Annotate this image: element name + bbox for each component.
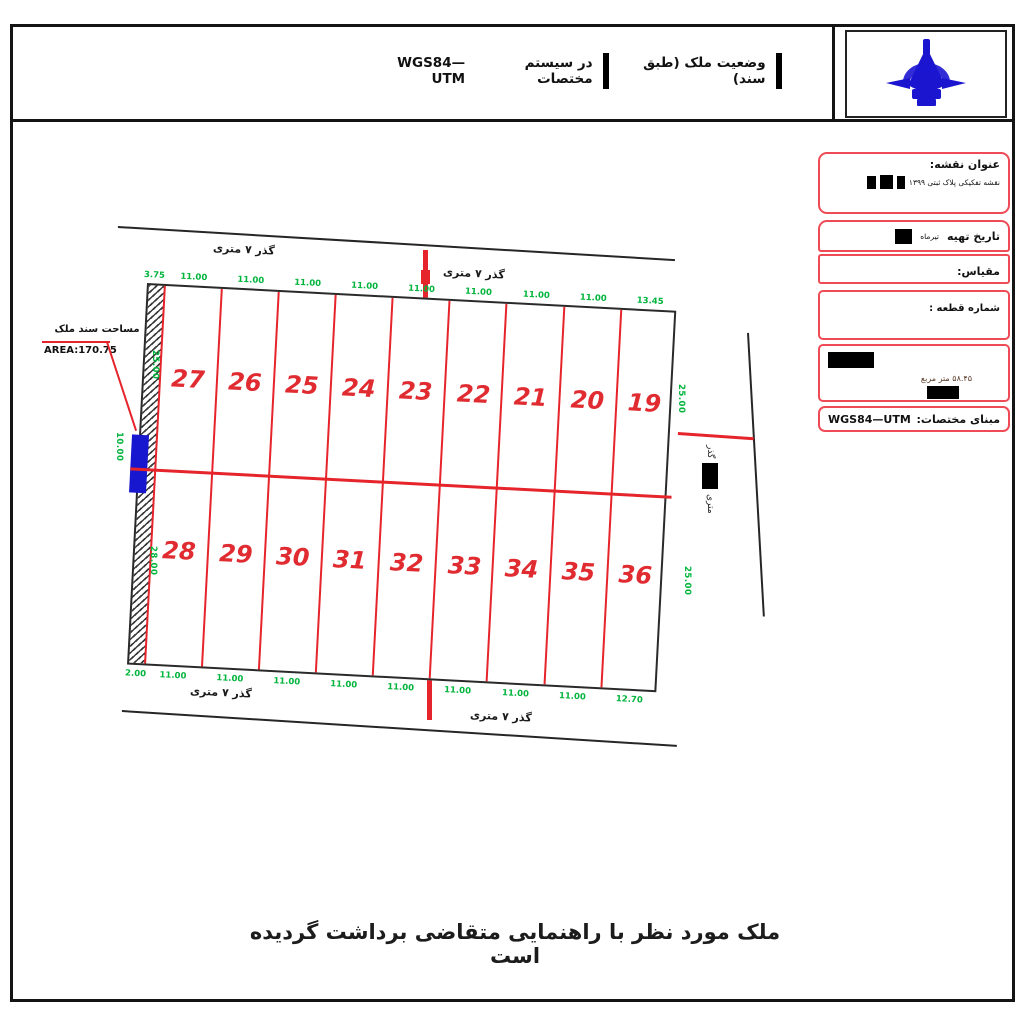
parcel-number: 25: [281, 370, 322, 400]
redaction-box: [897, 176, 905, 189]
parcel-number: 20: [567, 385, 608, 415]
datum-box: مبنای مختصات: WGS84—UTM: [818, 406, 1010, 432]
parcel-divider: [315, 295, 337, 673]
dimension-label: 11.00: [237, 275, 263, 286]
right-road-label-top: گذر: [705, 445, 715, 458]
parcel-divider: [544, 307, 566, 685]
sheet-title: وضعیت ملک (طبق سند) در سیستم مختصات WGS8…: [372, 50, 782, 92]
dimension-label: 12.70: [616, 694, 642, 705]
map-title-value: نقشه تفکیکی پلاک ثبتی ۱۳۹۹: [909, 178, 1000, 187]
logo-box: [845, 30, 1007, 118]
dimension-label: 2.00: [122, 668, 148, 679]
dimension-label: 11.00: [294, 278, 320, 289]
map-title-box: عنوان نقشه: نقشه تفکیکی پلاک ثبتی ۱۳۹۹: [818, 152, 1010, 214]
dimension-label: 11.00: [580, 293, 606, 304]
dimension-label: 3.75: [141, 270, 167, 281]
redaction-box: [895, 229, 912, 244]
right-road-label: گذر متری: [702, 445, 718, 605]
parcel-block: 27 26 25 24 23 22 21 20 19 28 29 30 31 3…: [127, 283, 676, 692]
map-title-label: عنوان نقشه:: [828, 158, 1000, 171]
redaction-box: [927, 386, 959, 399]
parcel-number: 22: [453, 379, 494, 409]
dimension-label: 10.00: [114, 432, 124, 461]
parcel-number: 23: [395, 376, 436, 406]
dimension-label: 11.00: [216, 673, 242, 684]
datum-value: WGS84—UTM: [828, 413, 911, 426]
parcel-number: 26: [224, 367, 265, 397]
dimension-label: 11.00: [330, 679, 356, 690]
redaction-box: [828, 352, 874, 368]
title-property-status: وضعیت ملک (طبق سند): [619, 55, 766, 87]
parcel-number: 36: [615, 560, 656, 590]
deed-area-label-en: AREA:170.75: [44, 345, 117, 356]
parcel-number: 28: [158, 536, 199, 566]
parcel-number: 33: [444, 551, 485, 581]
redaction-box: [702, 463, 718, 489]
dimension-label: 11.00: [159, 670, 185, 681]
deed-area-callout: مساحت سند ملک: [42, 324, 152, 335]
parcel-area-box: ۵۸.۴۵ متر مربع: [818, 344, 1010, 402]
dimension-label: 11.00: [465, 287, 491, 298]
parcel-divider: [486, 304, 508, 682]
dimension-label: 11.00: [351, 281, 377, 292]
parcel-area-value: ۵۸.۴۵ متر مربع: [828, 374, 972, 383]
dimension-label: 25.00: [676, 384, 686, 413]
redaction-bar: [776, 53, 782, 89]
scanned-cadastral-sheet: وضعیت ملک (طبق سند) در سیستم مختصات WGS8…: [0, 0, 1024, 1024]
scale-label: مقیاس:: [957, 265, 1000, 278]
dimension-label: 11.00: [502, 688, 528, 699]
logo-divider-line: [832, 24, 835, 122]
parcel-number-label: شماره قطعه :: [929, 303, 1000, 314]
parcel-number: 21: [510, 382, 551, 412]
parcel-number: 27: [167, 364, 208, 394]
highlighted-parcel: [129, 434, 149, 493]
parcel-divider: [258, 292, 280, 670]
scale-box: مقیاس:: [818, 254, 1010, 284]
dimension-label: 11.00: [273, 676, 299, 687]
surveyor-note: ملک مورد نظر با راهنمایی متقاضی برداشت گ…: [235, 920, 795, 968]
redaction-bar: [603, 53, 609, 89]
callout-underline: [42, 341, 110, 343]
dimension-label: 11.00: [444, 685, 470, 696]
pole-marker-top-head: [421, 270, 430, 284]
parcel-number-box: شماره قطعه :: [818, 290, 1010, 340]
dimension-label: 11.00: [387, 682, 413, 693]
date-box: تاریخ تهیه تیرماه: [818, 220, 1010, 252]
map-title-value-row: نقشه تفکیکی پلاک ثبتی ۱۳۹۹: [828, 175, 1000, 189]
right-road-label-bottom: متری: [705, 494, 715, 514]
parcel-number: 30: [272, 542, 313, 572]
dimension-label: 11.00: [559, 691, 585, 702]
date-value: تیرماه: [920, 232, 939, 241]
dimension-label: 25.00: [150, 350, 160, 379]
parcel-divider: [429, 301, 451, 679]
parcel-number: 32: [386, 548, 427, 578]
header-divider-line: [10, 119, 1012, 122]
deed-area-label-fa: مساحت سند ملک: [42, 324, 152, 335]
parcel-number: 19: [624, 388, 665, 418]
redaction-box: [880, 175, 893, 189]
redaction-box: [867, 176, 876, 189]
dimension-label: 11.00: [523, 290, 549, 301]
dimension-label: 11.00: [408, 284, 434, 295]
dimension-label: 13.45: [636, 296, 662, 307]
dimension-label: 11.00: [180, 272, 206, 283]
date-label: تاریخ تهیه: [947, 230, 1000, 243]
parcel-number: 29: [215, 539, 256, 569]
parcel-number: 34: [501, 554, 542, 584]
datum-label: مبنای مختصات:: [917, 413, 1000, 426]
dimension-label: 28.00: [148, 546, 158, 575]
title-datum: WGS84—UTM: [372, 55, 465, 87]
survey-organization-logo-icon: [884, 37, 968, 111]
parcel-number: 24: [338, 373, 379, 403]
title-coordinate-system: در سیستم مختصات: [475, 55, 593, 87]
parcel-number: 35: [558, 557, 599, 587]
parcel-divider: [201, 289, 223, 667]
parcel-divider: [372, 298, 394, 676]
parcel-number: 31: [329, 545, 370, 575]
dimension-label: 25.00: [682, 566, 692, 595]
parcel-divider: [600, 310, 622, 688]
